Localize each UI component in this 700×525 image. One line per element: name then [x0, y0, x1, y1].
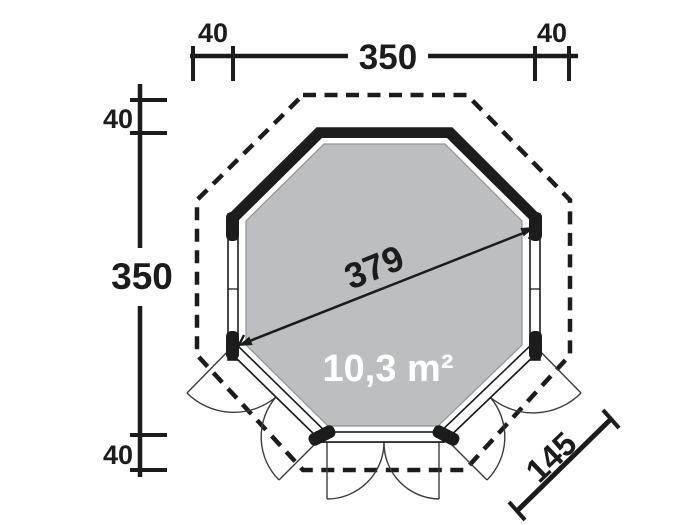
post-left-top — [226, 212, 239, 241]
floor-plan-canvas: 379 10,3 m² 40 350 40 40 350 40 145 — [0, 0, 700, 525]
dim-top-overhang-left-label: 40 — [198, 18, 228, 48]
door-arc-left-upper — [187, 393, 276, 412]
dim-top-width-label: 350 — [359, 38, 417, 77]
area-label: 10,3 m² — [323, 348, 454, 390]
dim-left-overhang-bottom-label: 40 — [103, 440, 133, 470]
dim-door-label: 145 — [518, 425, 583, 490]
dim-top-overhang-right-label: 40 — [537, 18, 567, 48]
dim-left-overhang-top-label: 40 — [103, 104, 133, 134]
dim-left-depth-label: 350 — [111, 256, 173, 297]
wall-front — [322, 432, 444, 442]
post-right-bottom — [529, 331, 542, 360]
door-arc-right-lower — [487, 397, 505, 480]
